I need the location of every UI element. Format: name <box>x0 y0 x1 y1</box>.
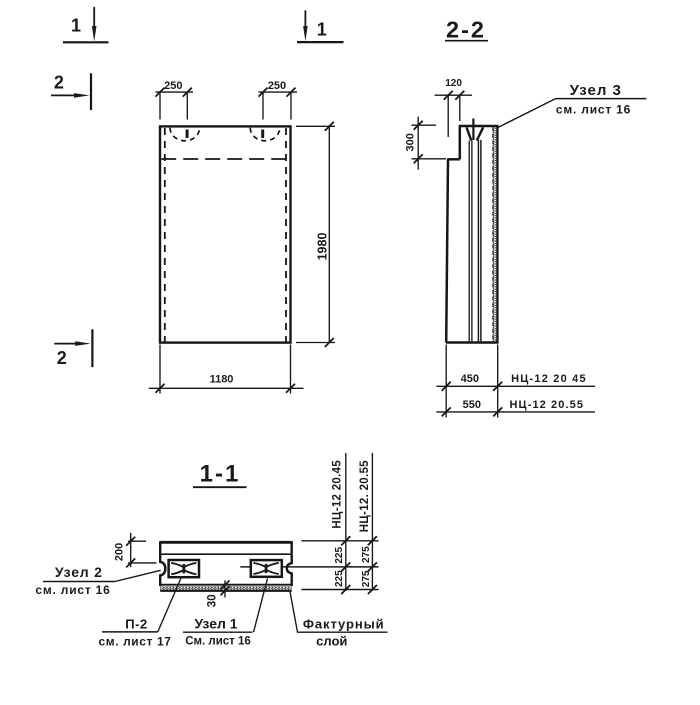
svg-text:250: 250 <box>268 80 286 92</box>
svg-text:275: 275 <box>361 546 372 563</box>
svg-text:30: 30 <box>206 594 218 607</box>
svg-text:250: 250 <box>164 80 182 92</box>
svg-text:2-2: 2-2 <box>446 16 486 42</box>
svg-text:300: 300 <box>405 133 417 151</box>
svg-text:450: 450 <box>461 373 479 385</box>
svg-text:1: 1 <box>317 20 327 40</box>
svg-text:см. лист 16: см. лист 16 <box>556 103 631 117</box>
svg-text:см. лист 17: см. лист 17 <box>98 634 171 648</box>
svg-text:НЦ-12 20 45: НЦ-12 20 45 <box>511 373 587 385</box>
svg-text:1-1: 1-1 <box>200 461 241 488</box>
svg-text:225: 225 <box>334 547 345 564</box>
svg-text:120: 120 <box>445 78 462 89</box>
svg-text:275: 275 <box>361 570 372 587</box>
svg-text:Узел 1: Узел 1 <box>194 616 237 632</box>
svg-text:См. лист 16: См. лист 16 <box>185 636 251 648</box>
svg-text:200: 200 <box>114 543 126 561</box>
svg-text:см. лист 16: см. лист 16 <box>35 583 110 597</box>
svg-text:Узел 2: Узел 2 <box>55 564 103 580</box>
svg-text:слой: слой <box>316 633 347 648</box>
svg-text:НЦ-12 20.55: НЦ-12 20.55 <box>510 399 585 411</box>
svg-text:1180: 1180 <box>210 374 234 386</box>
svg-text:550: 550 <box>463 399 481 411</box>
svg-text:2: 2 <box>57 348 67 368</box>
svg-text:2: 2 <box>54 72 64 92</box>
svg-text:НЦ-12. 20.55: НЦ-12. 20.55 <box>359 460 371 532</box>
svg-text:225: 225 <box>334 570 345 587</box>
svg-text:Узел 3: Узел 3 <box>570 82 622 99</box>
svg-text:1980: 1980 <box>316 233 330 261</box>
svg-text:1: 1 <box>71 16 81 36</box>
svg-text:Фактурный: Фактурный <box>303 617 385 632</box>
svg-text:НЦ-12 20.45: НЦ-12 20.45 <box>332 460 344 529</box>
svg-text:П-2: П-2 <box>125 617 147 632</box>
